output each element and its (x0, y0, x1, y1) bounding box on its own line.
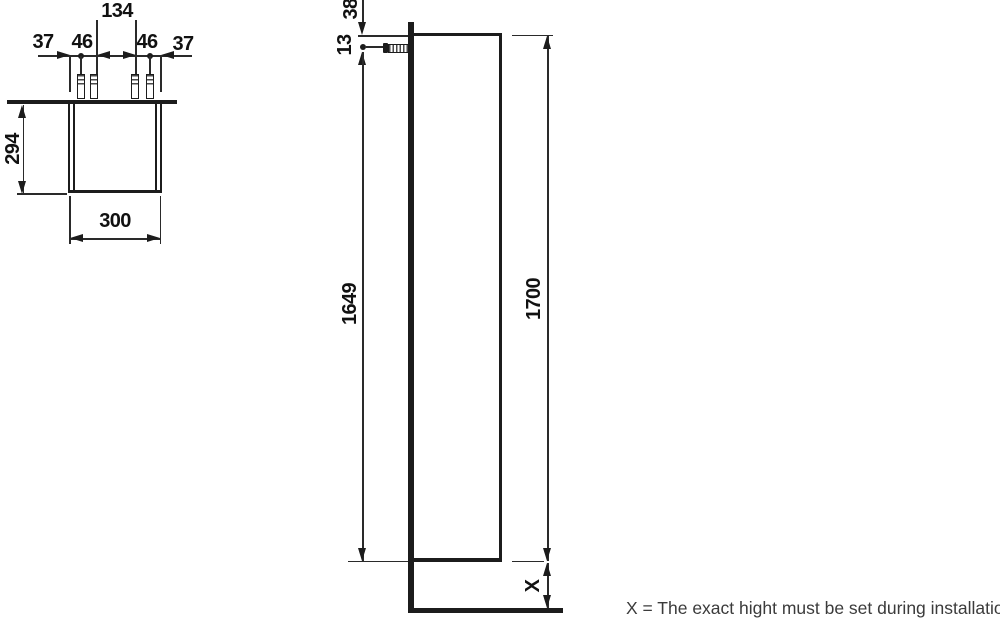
dim-arrow-up-icon (543, 563, 551, 576)
dim-arrow-left-icon (161, 51, 174, 59)
cabinet-side-panel (160, 104, 162, 193)
cabinet-bottom-edge (414, 558, 502, 562)
technical-drawing: 134 37 46 46 37 294 (0, 0, 1000, 620)
wall-anchor-icon (146, 74, 154, 99)
cabinet-side-panel (73, 104, 75, 193)
dim-label-1649: 1649 (341, 274, 359, 334)
cabinet-top-edge (414, 33, 502, 36)
dim-label-38: 38 (342, 0, 360, 24)
installation-note: X = The exact hight must be set during i… (626, 598, 1000, 619)
cabinet-front-panel (68, 190, 162, 193)
wall-anchor-icon (131, 74, 139, 99)
dim-line-screw-height (362, 52, 364, 561)
wall-line (7, 100, 177, 104)
extension-line (512, 561, 544, 563)
mounting-screw-icon (388, 44, 410, 53)
dim-arrow-right-icon (147, 234, 160, 242)
dim-label-46-right: 46 (132, 33, 162, 51)
dim-arrow-down-icon (358, 548, 366, 561)
dim-label-1700: 1700 (525, 269, 543, 329)
dim-line (362, 0, 364, 22)
extension-line (348, 561, 410, 563)
dim-arrow-up-icon (543, 36, 551, 49)
cabinet-side-panel (68, 104, 70, 193)
dim-label-13: 13 (336, 30, 354, 60)
dim-arrow-down-icon (543, 595, 551, 608)
dim-arrow-up-icon (18, 105, 26, 118)
dim-label-294: 294 (4, 120, 22, 178)
extension-line (69, 56, 71, 92)
wall-anchor-icon (77, 74, 85, 99)
cabinet-side-panel (155, 104, 157, 193)
dim-line-cabinet-height (547, 36, 549, 561)
dim-label-300: 300 (95, 212, 135, 230)
dim-label-x: X (524, 574, 542, 598)
wall-line (408, 22, 414, 613)
dim-arrow-down-icon (543, 548, 551, 561)
cabinet-front-edge (499, 33, 502, 562)
dim-label-37-left: 37 (28, 33, 58, 51)
dim-label-46-left: 46 (67, 33, 97, 51)
floor-line (408, 608, 563, 613)
extension-line (17, 193, 67, 195)
wall-anchor-icon (90, 74, 98, 99)
dim-label-134: 134 (97, 2, 137, 20)
dim-arrow-left-icon (97, 51, 110, 59)
extension-line (358, 35, 410, 37)
extension-line (160, 56, 162, 92)
dim-arrow-down-icon (358, 22, 366, 35)
dim-arrow-left-icon (70, 234, 83, 242)
